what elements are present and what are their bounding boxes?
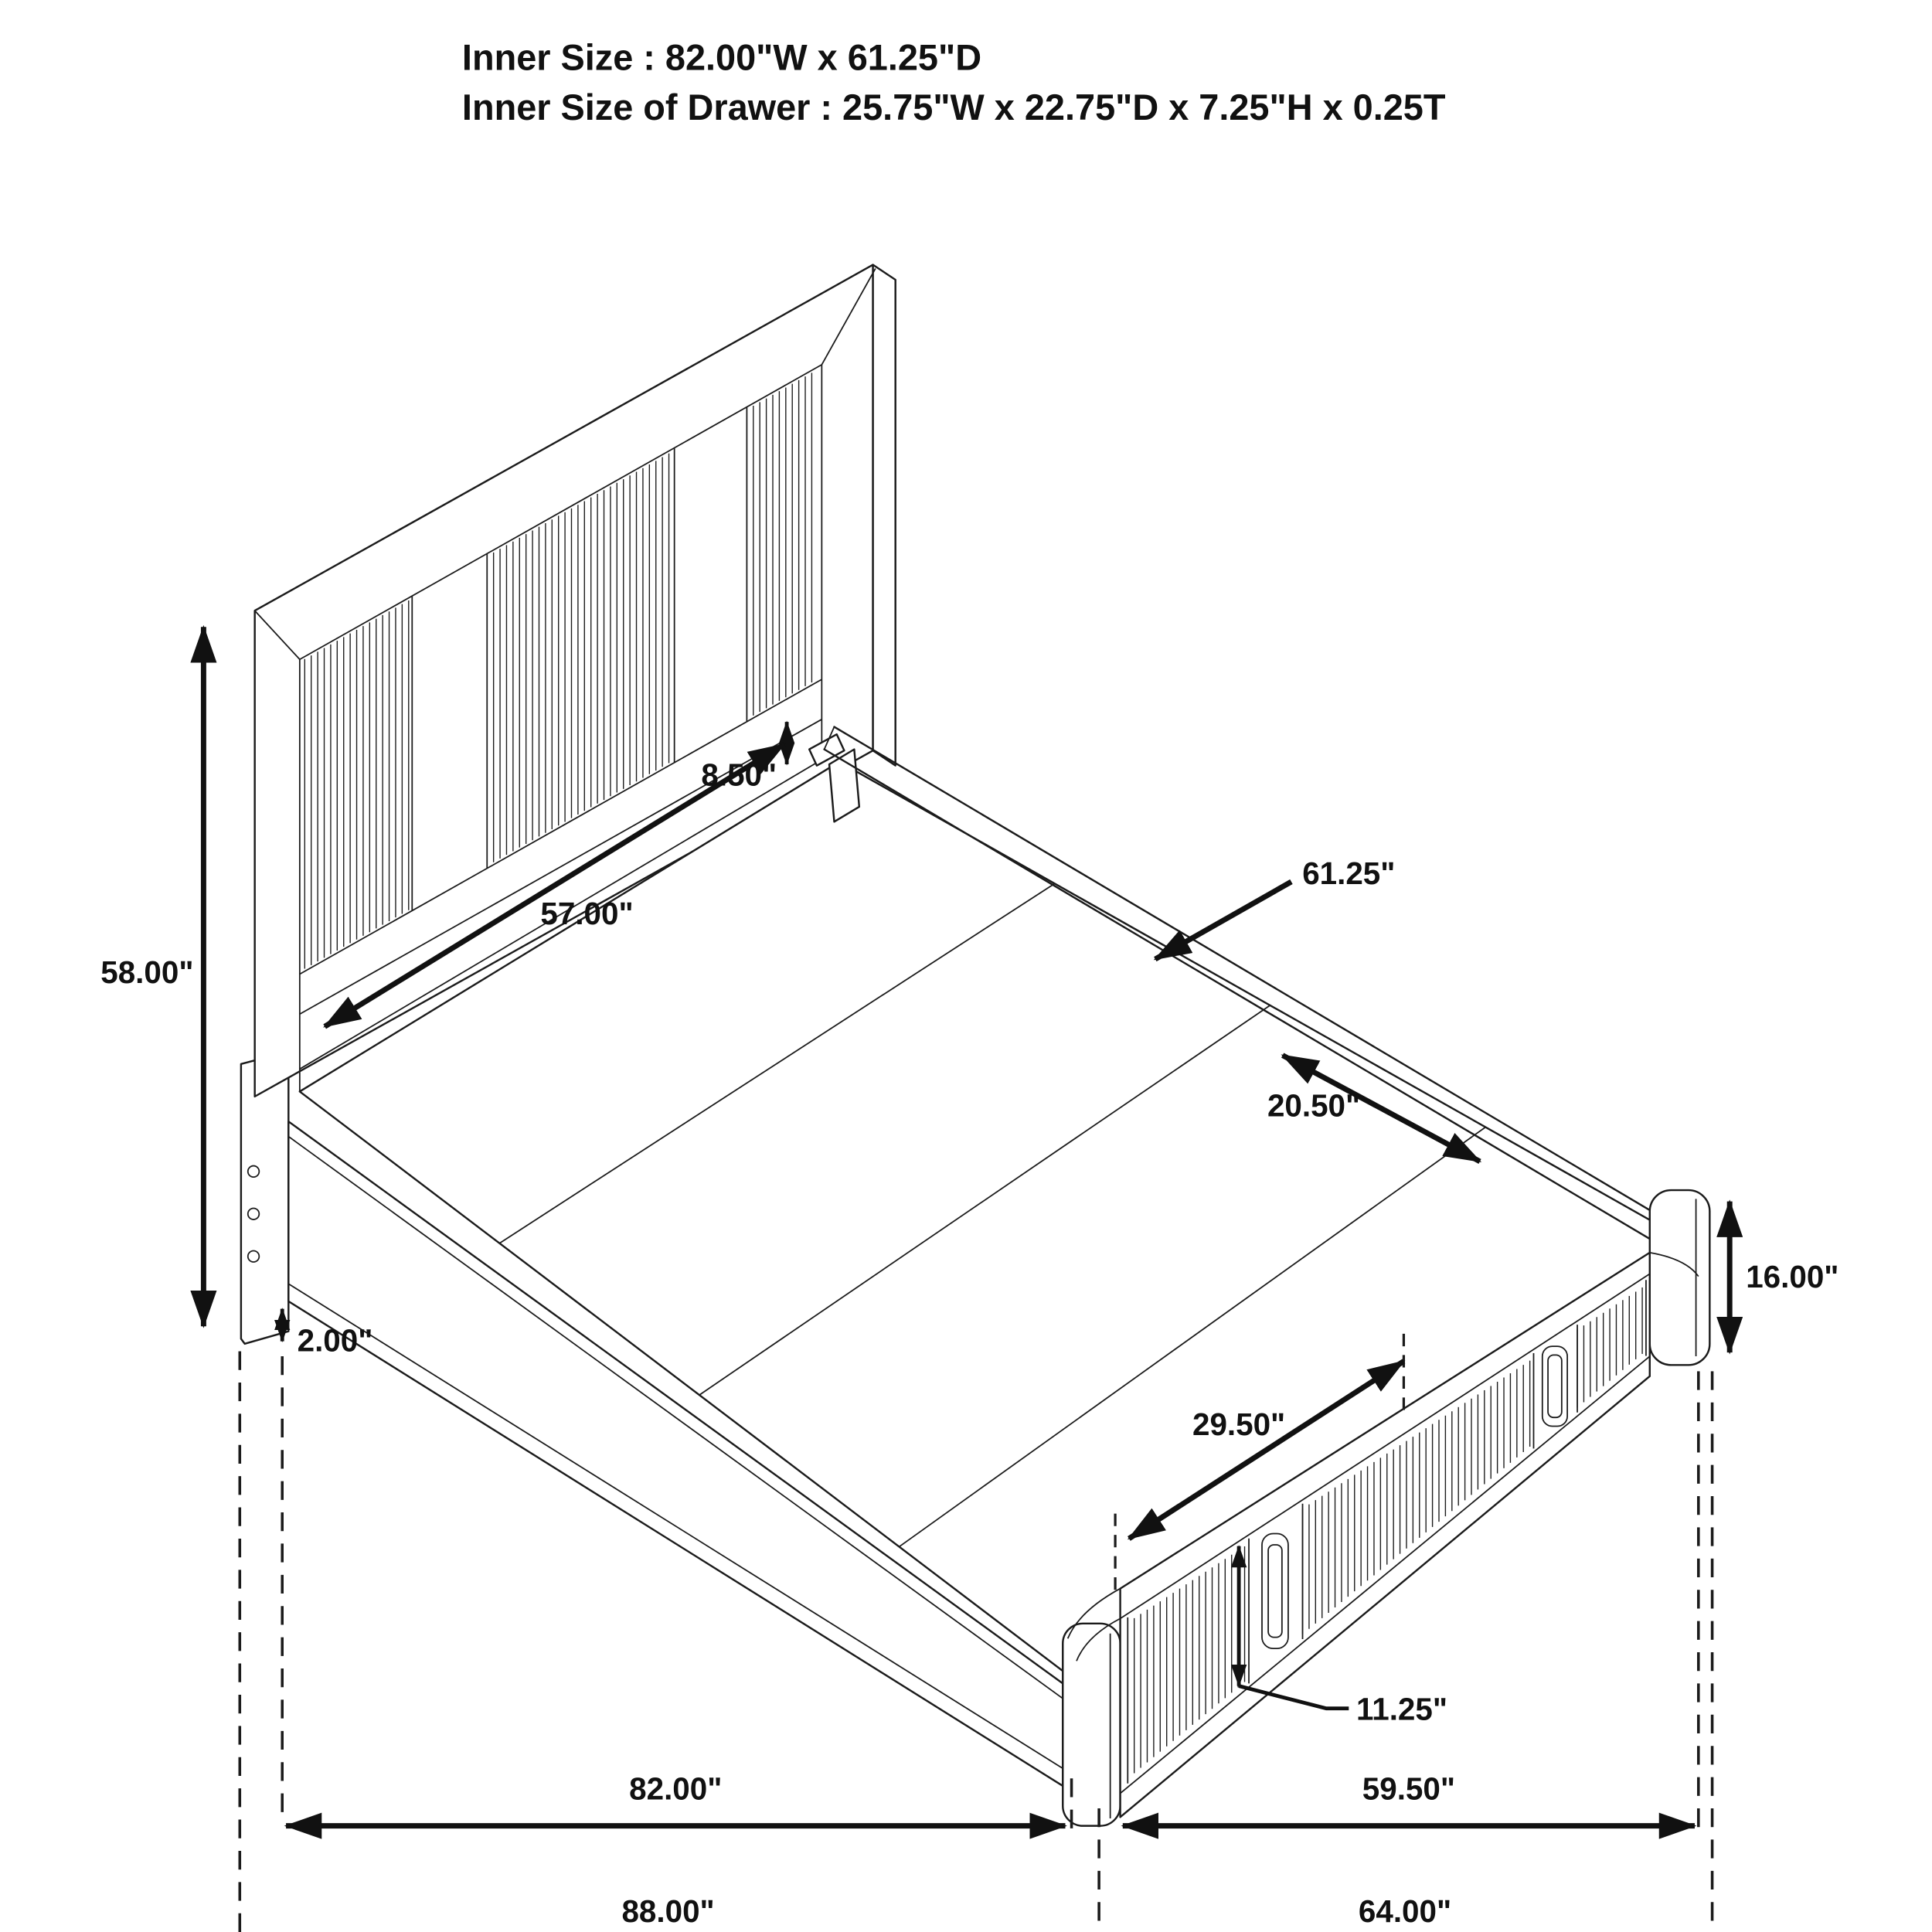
dim-label-drawer-height: 11.25" — [1356, 1691, 1447, 1726]
dim-label-overall-depth: 64.00" — [1359, 1893, 1451, 1929]
dim-label-rail-segment: 20.50" — [1267, 1088, 1360, 1124]
footboard-right-corner-post — [1650, 1190, 1710, 1365]
bed-dimension-diagram: Inner Size : 82.00"W x 61.25"D Inner Siz… — [0, 0, 1932, 1932]
headboard-left-leg — [241, 1052, 288, 1344]
dim-label-footboard-height: 16.00" — [1746, 1259, 1838, 1294]
title-block: Inner Size : 82.00"W x 61.25"D Inner Siz… — [462, 37, 1446, 128]
dim-label-drawer-width: 29.50" — [1192, 1406, 1285, 1442]
inner-size-title: Inner Size : 82.00"W x 61.25"D — [462, 37, 981, 77]
drawer-inner-size-title: Inner Size of Drawer : 25.75"W x 22.75"D… — [462, 87, 1446, 128]
dim-label-side-depth: 59.50" — [1362, 1771, 1455, 1807]
dim-label-headboard-height: 58.00" — [100, 954, 193, 990]
dim-label-floor-clearance: 2.00" — [298, 1323, 373, 1359]
dim-label-headboard-inner-width: 57.00" — [540, 896, 633, 931]
dim-label-platform-depth: 61.25" — [1302, 855, 1395, 891]
dim-arrow-platform-depth — [1155, 882, 1291, 959]
dim-label-overall-width: 88.00" — [621, 1893, 714, 1929]
headboard-edge — [873, 265, 896, 766]
bed-diagram-svg: Inner Size : 82.00"W x 61.25"D Inner Siz… — [0, 0, 1932, 1932]
dim-label-inner-width: 82.00" — [629, 1771, 722, 1807]
